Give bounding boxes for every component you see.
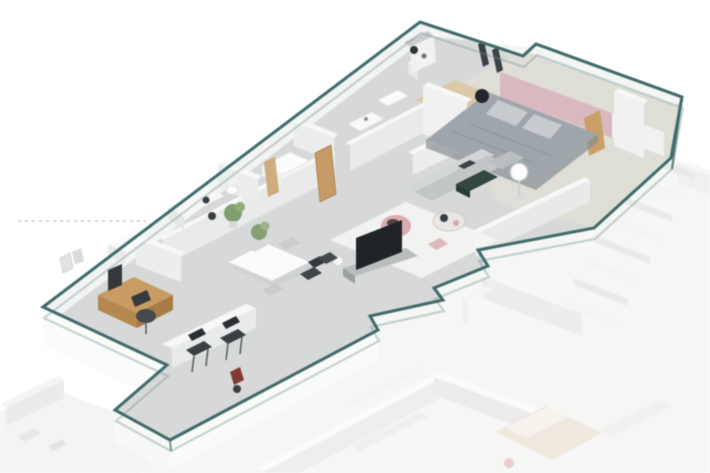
floor-plan-render xyxy=(0,0,710,473)
potted-plant-leaf xyxy=(235,202,245,212)
floor-lamp-shade xyxy=(511,164,528,181)
neighbor-pink-item xyxy=(504,458,514,468)
toilet xyxy=(226,186,238,195)
shelf-item xyxy=(422,54,427,59)
floor-lamp-base xyxy=(514,196,524,200)
wall-art xyxy=(60,253,73,273)
faucet xyxy=(364,117,368,121)
floor-plan-canvas xyxy=(0,0,710,473)
wall-art xyxy=(72,248,84,265)
desk-chair-seat xyxy=(136,309,156,323)
dark-item xyxy=(233,385,241,393)
coffee-table xyxy=(433,211,465,231)
shelf-item xyxy=(410,46,418,54)
coffee-table-item xyxy=(453,220,459,226)
plant-pot xyxy=(229,221,237,228)
unit-outline-corner-drop xyxy=(170,440,171,451)
bed-dark-object xyxy=(475,89,489,103)
hall-dark-item xyxy=(208,212,216,220)
neighbor-column-face xyxy=(462,296,468,326)
potted-plant-leaf xyxy=(261,222,270,231)
coffee-table-item xyxy=(440,214,448,222)
